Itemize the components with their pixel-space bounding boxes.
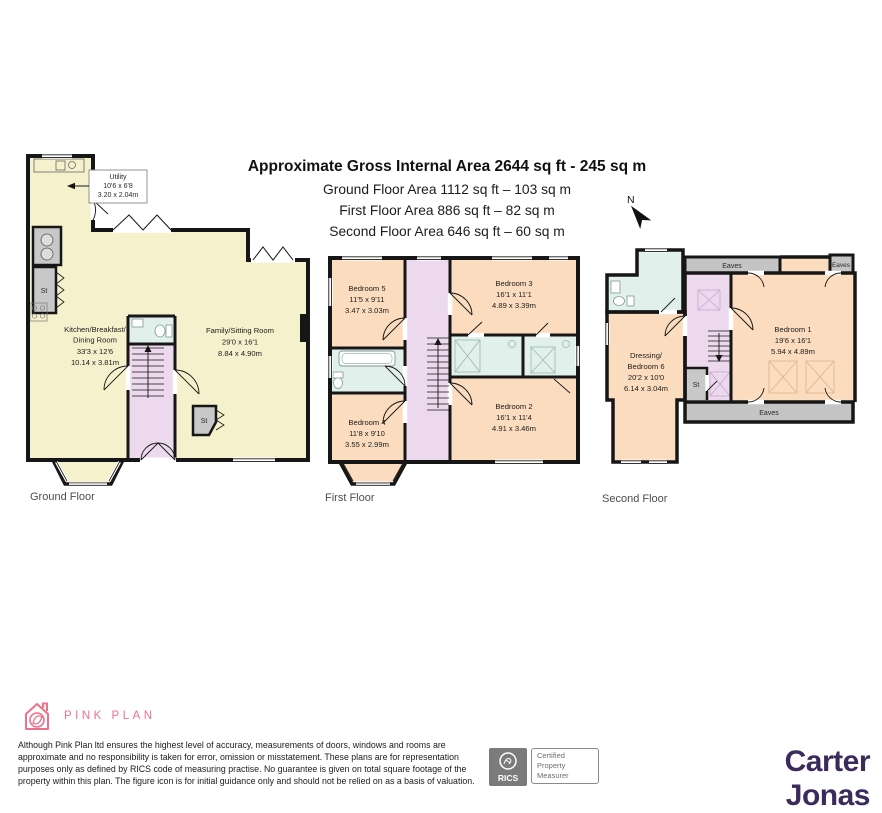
family-name: Family/Sitting Room — [206, 326, 274, 335]
first-landing — [405, 258, 450, 462]
room-label-bedroom1: Bedroom 1 19'6 x 16'1 5.94 x 4.89m — [771, 325, 815, 356]
caption-second-floor: Second Floor — [602, 493, 667, 505]
dressing-name: Dressing/ — [630, 351, 663, 360]
bedroom2-dims-ft: 16'1 x 11'4 — [496, 413, 532, 422]
agent-logo: Carter Jonas — [694, 745, 870, 813]
appliance-box — [33, 227, 61, 265]
bedroom5-name: Bedroom 5 — [348, 284, 385, 293]
bathtub — [339, 351, 395, 366]
pink-plan-wordmark: PINK PLAN — [64, 710, 156, 722]
room-label-bedroom2: Bedroom 2 16'1 x 11'4 4.91 x 3.46m — [492, 402, 536, 433]
bedroom1-strip — [780, 257, 830, 273]
eaves-label-top-right: Eaves — [832, 262, 851, 269]
bedroom5-dims-ft: 11'5 x 9'11 — [349, 295, 384, 304]
family-dims-ft: 29'0 x 16'1 — [222, 338, 258, 347]
first-shower-room — [450, 335, 523, 377]
dressing-dims-m: 6.14 x 3.04m — [624, 384, 668, 393]
rics-cert-line2: Property — [537, 761, 593, 771]
rics-cert-line1: Certified — [537, 751, 593, 761]
room-label-bedroom4: Bedroom 4 11'8 x 9'10 3.55 x 2.99m — [345, 418, 389, 449]
family-dims-m: 8.84 x 4.90m — [218, 349, 262, 358]
bedroom2-name: Bedroom 2 — [495, 402, 532, 411]
bedroom1-dims-ft: 19'6 x 16'1 — [775, 336, 811, 345]
rics-wordmark: RICS — [498, 773, 519, 783]
utility-dims-ft: 10'6 x 6'8 — [103, 183, 133, 190]
north-arrow-icon: N — [612, 188, 660, 236]
ground-hall — [128, 344, 175, 460]
rics-lion-icon: RICS — [489, 748, 527, 786]
rics-cert-line3: Measurer — [537, 771, 593, 781]
first-floor-plan: Bedroom 5 11'5 x 9'11 3.47 x 3.03m Bedro… — [322, 248, 587, 493]
ground-floor-plan: St St — [20, 148, 315, 493]
dressing-name2: Bedroom 6 — [627, 362, 664, 371]
bedroom3-dims-m: 4.89 x 3.39m — [492, 301, 536, 310]
bedroom4-dims-m: 3.55 x 2.99m — [345, 440, 389, 449]
pink-plan-logo: PINK PLAN — [20, 700, 156, 732]
dressing-dims-ft: 20'2 x 10'0 — [628, 373, 664, 382]
rics-cert-label: Certified Property Measurer — [531, 748, 599, 784]
bedroom3-dims-ft: 16'1 x 11'1 — [496, 290, 532, 299]
second-floor-plan: Eaves Eaves Eaves St Bedroom 1 19'6 x 16… — [603, 243, 873, 488]
disclaimer-text: Although Pink Plan ltd ensures the highe… — [18, 740, 484, 788]
kitchen-name: Kitchen/Breakfast/ — [64, 325, 127, 334]
kitchen-dims-m: 10.14 x 3.81m — [71, 358, 119, 367]
storage-label: St — [693, 382, 700, 389]
wall-pillar — [300, 314, 308, 342]
caption-first-floor: First Floor — [325, 492, 375, 504]
kitchen-name2: Dining Room — [73, 336, 117, 345]
utility-dims-m: 3.20 x 2.04m — [98, 192, 139, 199]
utility-name: Utility — [109, 174, 127, 181]
storage-label: St — [201, 418, 208, 425]
bedroom1-name: Bedroom 1 — [774, 325, 811, 334]
bedroom4-dims-ft: 11'8 x 9'10 — [349, 429, 385, 438]
bedroom3-name: Bedroom 3 — [495, 279, 532, 288]
bedroom1-dims-m: 5.94 x 4.89m — [771, 347, 815, 356]
bathroom-toilet — [333, 372, 343, 389]
bedroom2-dims-m: 4.91 x 3.46m — [492, 424, 536, 433]
kitchen-dims-ft: 33'3 x 12'6 — [77, 347, 113, 356]
bedroom5-dims-m: 3.47 x 3.03m — [345, 306, 389, 315]
room-label-bedroom5: Bedroom 5 11'5 x 9'11 3.47 x 3.03m — [345, 284, 389, 315]
caption-ground-floor: Ground Floor — [30, 491, 95, 503]
pink-plan-house-icon — [20, 700, 54, 732]
room-label-bedroom3: Bedroom 3 16'1 x 11'1 4.89 x 3.39m — [492, 279, 536, 310]
rics-badge: RICS — [489, 748, 527, 786]
bedroom4-name: Bedroom 4 — [348, 418, 385, 427]
eaves-label-bottom: Eaves — [759, 410, 779, 417]
north-label: N — [627, 194, 635, 206]
eaves-label-top: Eaves — [722, 263, 742, 270]
rics-certification: RICS Certified Property Measurer — [489, 748, 599, 786]
storage-label: St — [41, 288, 48, 295]
